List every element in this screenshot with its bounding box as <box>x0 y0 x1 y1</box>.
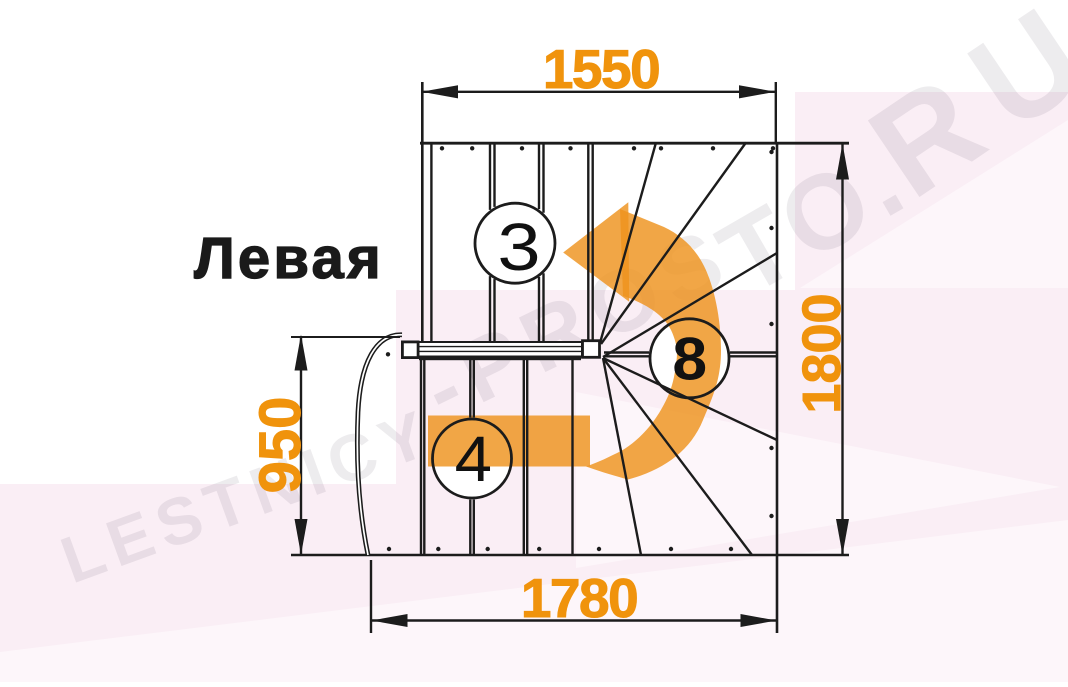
svg-text:8: 8 <box>672 326 707 393</box>
svg-text:Левая: Левая <box>194 226 384 291</box>
svg-text:1780: 1780 <box>521 567 637 629</box>
svg-text:1550: 1550 <box>543 38 659 100</box>
svg-text:1800: 1800 <box>792 293 852 413</box>
svg-text:4: 4 <box>455 423 492 494</box>
svg-text:950: 950 <box>248 397 313 494</box>
svg-text:3: 3 <box>497 210 540 285</box>
